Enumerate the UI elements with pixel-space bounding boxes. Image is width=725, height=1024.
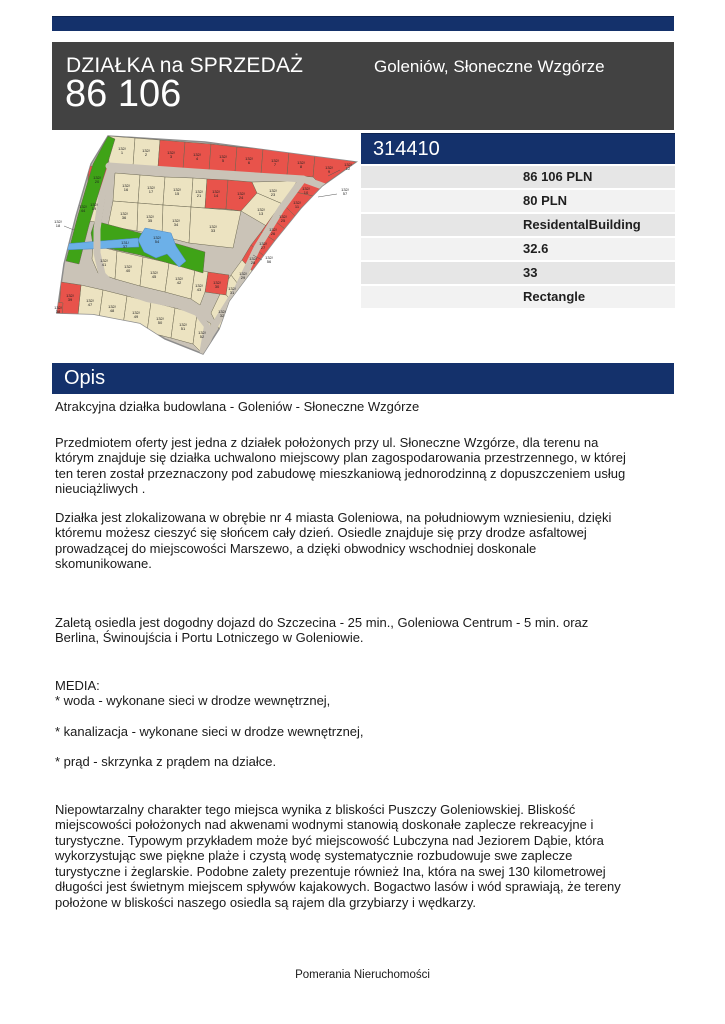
map-label-leader — [318, 194, 337, 197]
description-paragraph: Niepowtarzalny charakter tego miejsca wy… — [55, 802, 633, 911]
detail-value: 80 PLN — [361, 190, 675, 212]
map-plot-label: 132/12 — [344, 162, 353, 171]
listing-location: Goleniów, Słoneczne Wzgórze — [374, 57, 605, 77]
map-plot-label: 132/56 — [265, 255, 274, 264]
description-paragraph: Atrakcyjna działka budowlana - Goleniów … — [55, 399, 633, 415]
listing-details-table: 314410 86 106 PLN80 PLNResidentalBuildin… — [361, 133, 675, 308]
description-heading: Opis — [52, 363, 674, 394]
description-paragraph: * kanalizacja - wykonane sieci w drodze … — [55, 724, 633, 740]
plot-map: 132/1132/2132/3132/4132/5132/6132/7132/8… — [45, 133, 365, 359]
detail-value: 33 — [361, 262, 675, 284]
top-accent-bar — [52, 16, 674, 31]
map-plot-label: 132/31 — [228, 286, 237, 295]
description-body: Atrakcyjna działka budowlana - Goleniów … — [55, 399, 633, 910]
description-paragraph: Działka jest zlokalizowana w obrębie nr … — [55, 510, 633, 572]
detail-row: ResidentalBuilding — [361, 214, 675, 236]
map-plot-label: 132/57 — [341, 187, 350, 196]
footer-agency: Pomerania Nieruchomości — [0, 969, 725, 981]
map-plot-label: 132/32 — [218, 309, 227, 318]
detail-value: ResidentalBuilding — [361, 214, 675, 236]
detail-row: 86 106 PLN — [361, 166, 675, 188]
detail-value: Rectangle — [361, 286, 675, 308]
description-paragraph: Przedmiotem oferty jest jedna z działek … — [55, 435, 633, 497]
detail-row: 33 — [361, 262, 675, 284]
description-paragraph: MEDIA: * woda - wykonane sieci w drodze … — [55, 678, 633, 709]
detail-value: 32.6 — [361, 238, 675, 260]
description-paragraph: * prąd - skrzynka z prądem na działce. — [55, 754, 633, 770]
listing-header: DZIAŁKA na SPRZEDAŻ 86 106 Goleniów, Sło… — [52, 42, 674, 130]
plot-map-svg: 132/1132/2132/3132/4132/5132/6132/7132/8… — [45, 133, 365, 359]
detail-value: 86 106 PLN — [361, 166, 675, 188]
listing-price: 86 106 — [65, 73, 181, 116]
description-paragraph: Zaletą osiedla jest dogodny dojazd do Sz… — [55, 615, 633, 646]
map-plot-label: 132/18 — [54, 219, 63, 228]
detail-rows: 86 106 PLN80 PLNResidentalBuilding32.633… — [361, 166, 675, 308]
listing-id: 314410 — [361, 133, 675, 164]
detail-row: 32.6 — [361, 238, 675, 260]
detail-row: 80 PLN — [361, 190, 675, 212]
detail-row: Rectangle — [361, 286, 675, 308]
